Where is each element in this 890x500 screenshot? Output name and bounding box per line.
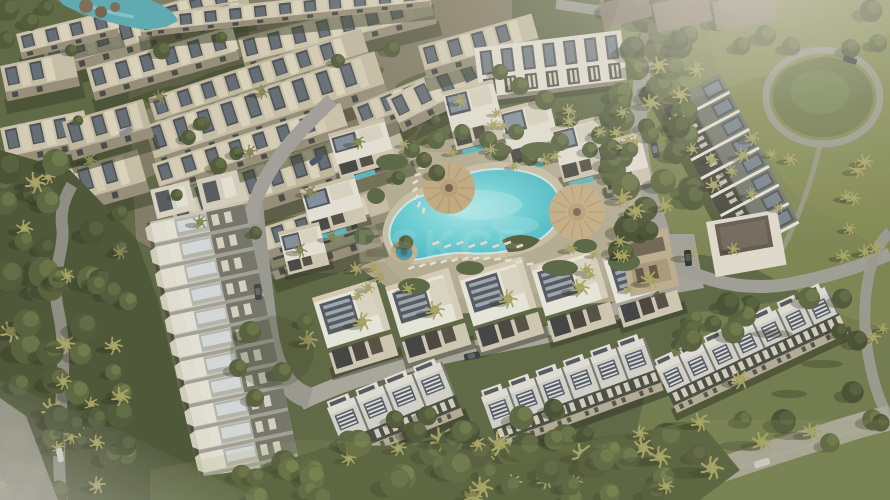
svg-text:ESKCE: ESKCE — [356, 220, 529, 272]
